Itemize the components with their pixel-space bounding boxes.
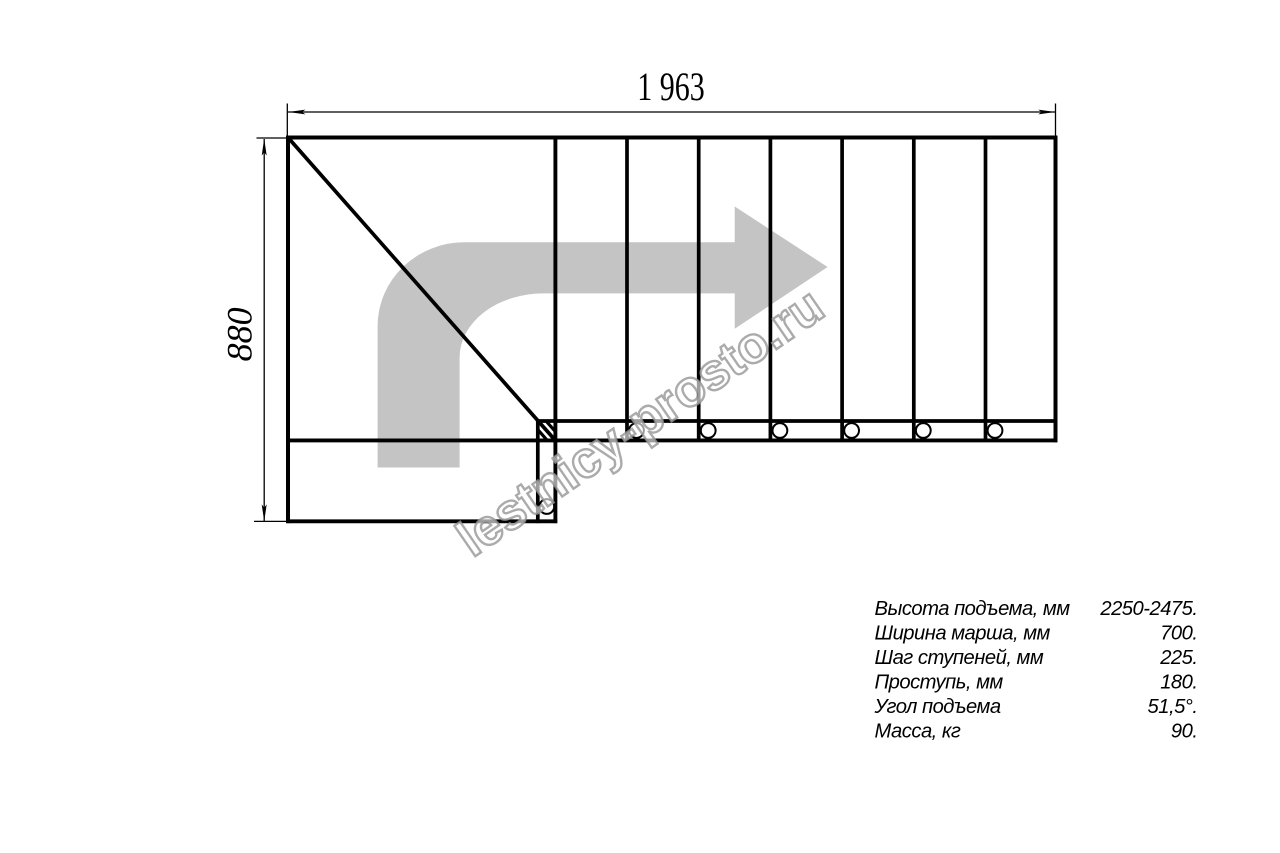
svg-text:Угол подъема: Угол подъема bbox=[874, 696, 1001, 718]
svg-text:Ширина марша, мм: Ширина марша, мм bbox=[875, 623, 1051, 645]
svg-text:Проступь, мм: Проступь, мм bbox=[875, 672, 1004, 694]
svg-text:Масса, кг: Масса, кг bbox=[875, 721, 961, 743]
svg-text:Шаг ступеней, мм: Шаг ступеней, мм bbox=[875, 647, 1044, 669]
svg-text:2250-2475.: 2250-2475. bbox=[1099, 598, 1197, 620]
svg-text:880: 880 bbox=[220, 307, 260, 361]
svg-text:51,5°.: 51,5°. bbox=[1148, 696, 1198, 718]
svg-text:700.: 700. bbox=[1160, 623, 1197, 645]
svg-text:1 963: 1 963 bbox=[637, 64, 704, 109]
svg-text:90.: 90. bbox=[1171, 721, 1198, 743]
svg-text:225.: 225. bbox=[1159, 647, 1197, 669]
svg-text:180.: 180. bbox=[1160, 672, 1197, 694]
svg-text:Высота подъема, мм: Высота подъема, мм bbox=[875, 598, 1071, 620]
